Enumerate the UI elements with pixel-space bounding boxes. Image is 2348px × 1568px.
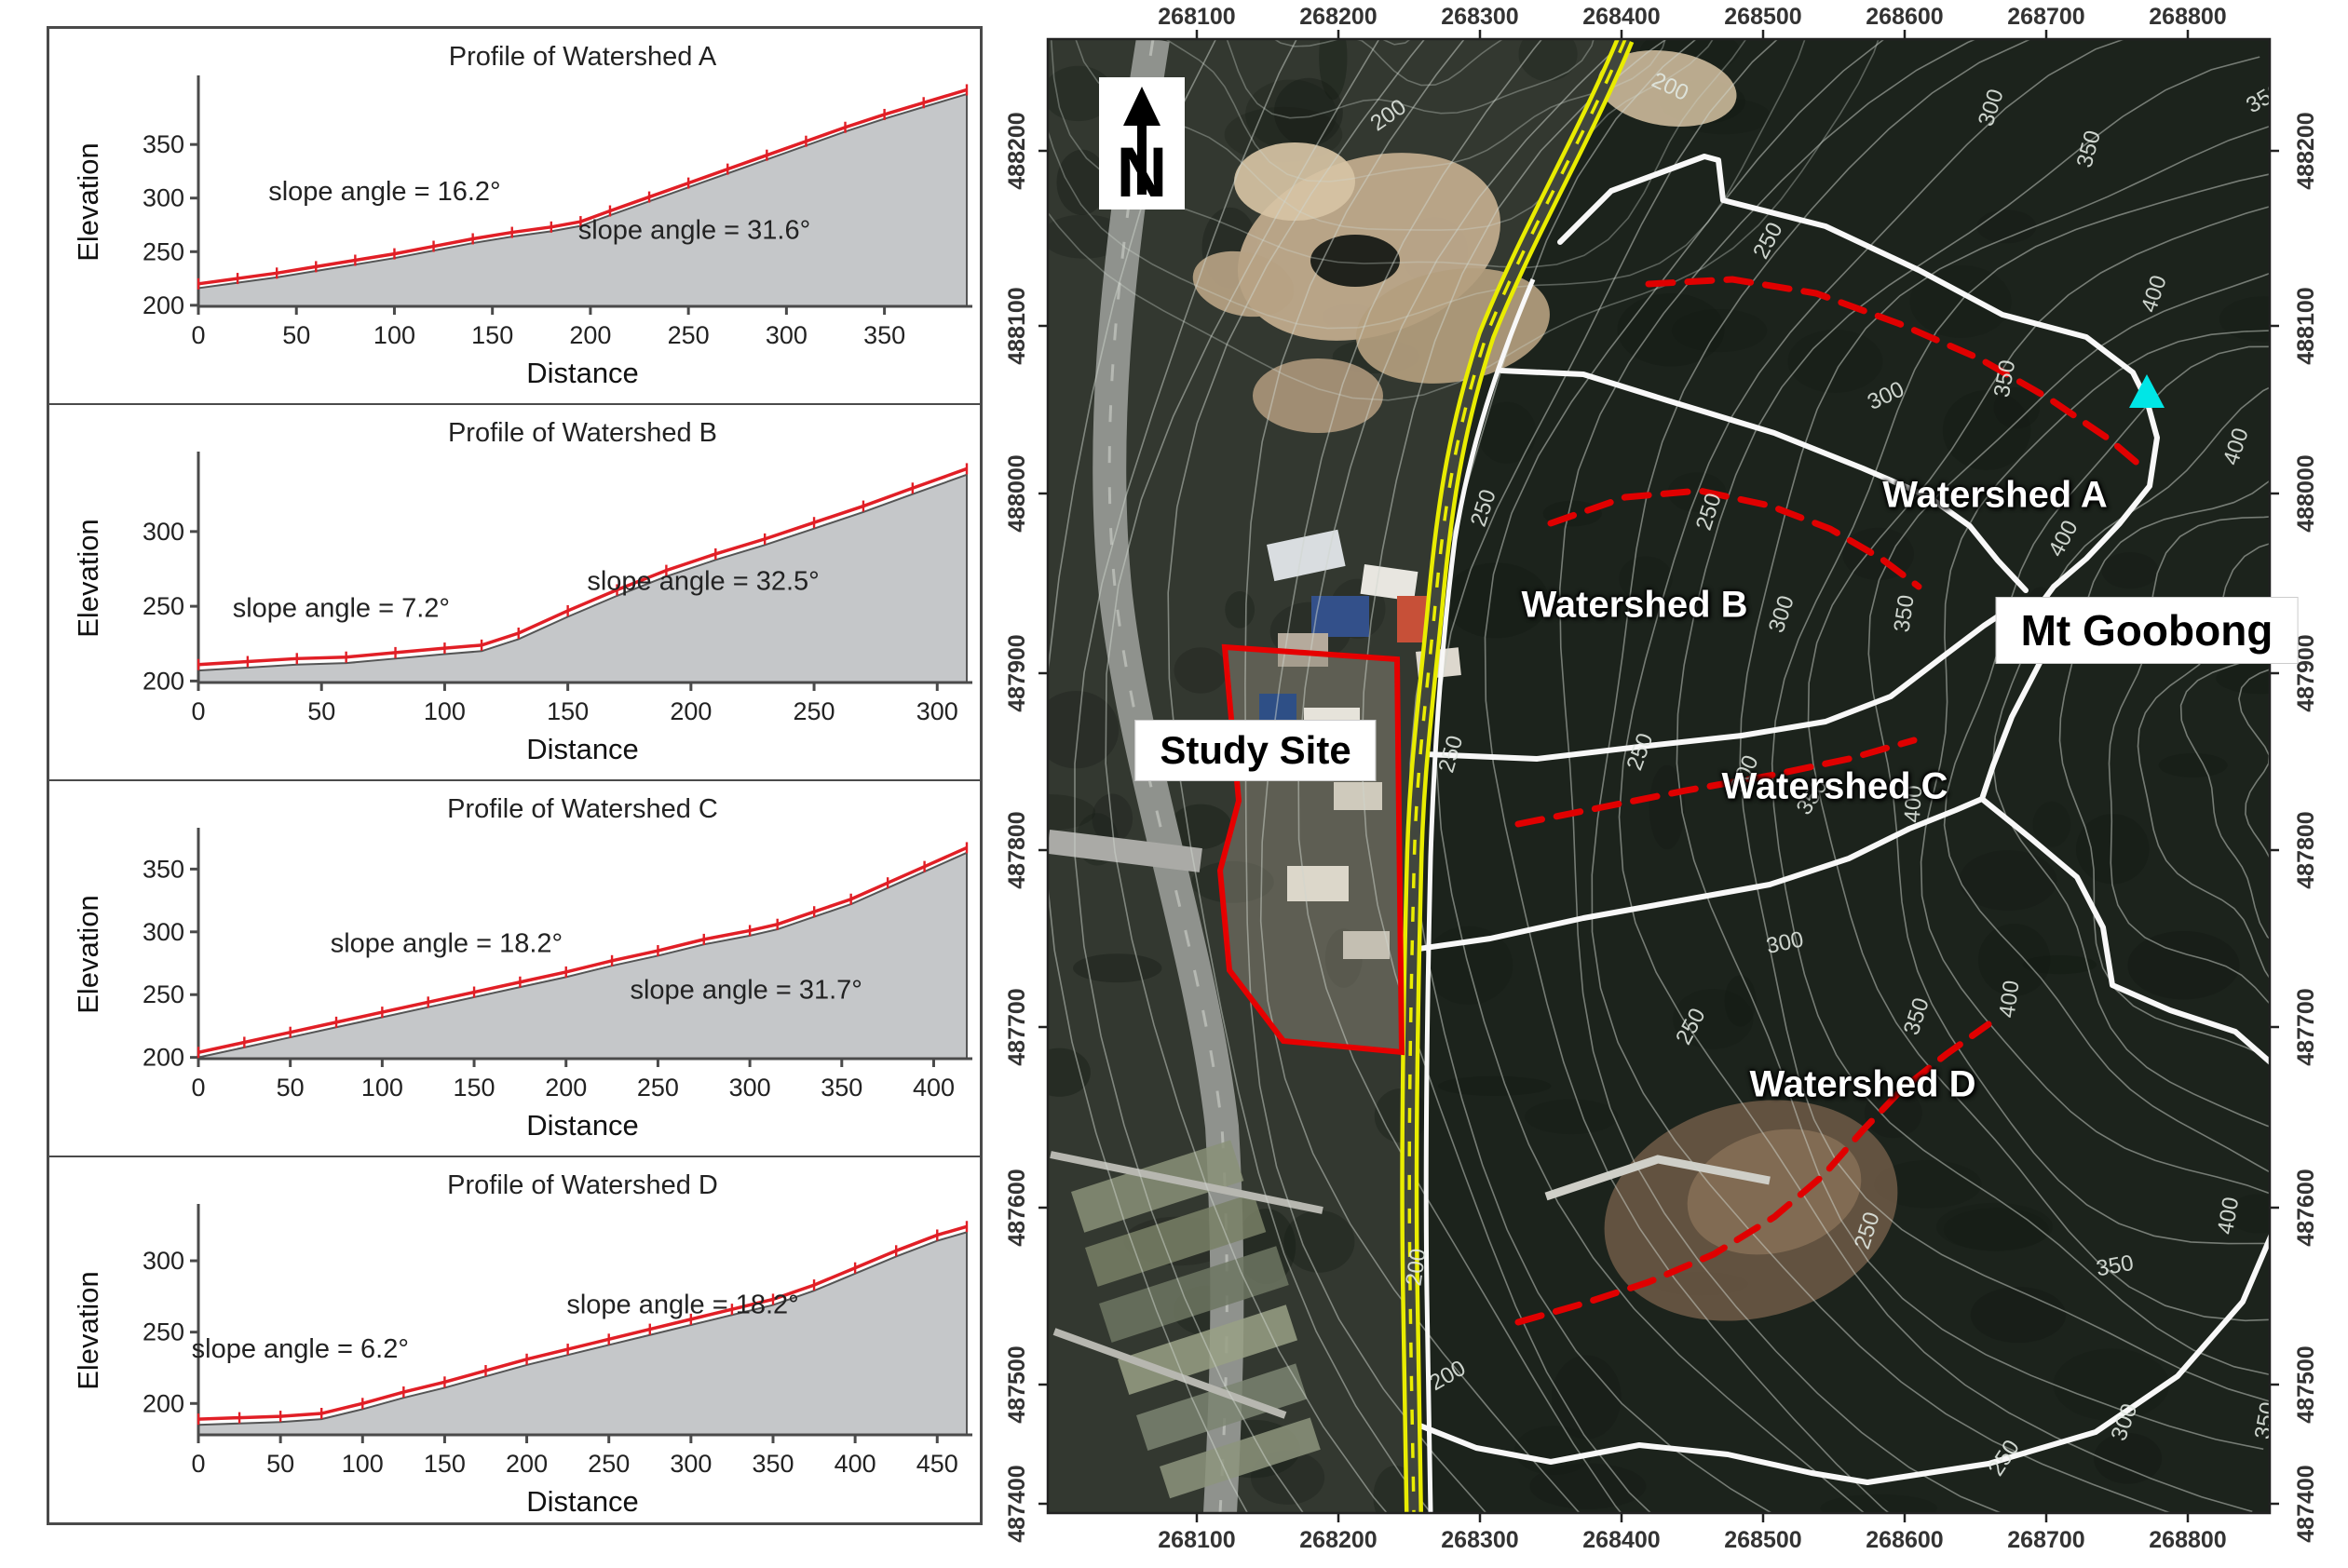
building bbox=[1311, 596, 1369, 637]
top-axis-label: 268600 bbox=[1866, 4, 1943, 30]
right-axis-label: 487800 bbox=[2293, 811, 2319, 888]
study-site-label: Study Site bbox=[1134, 720, 1376, 781]
forest-texture bbox=[1529, 1464, 1646, 1509]
left-axis-label: 487800 bbox=[1004, 811, 1030, 888]
forest-texture bbox=[2101, 552, 2158, 588]
watershed-b-label: Watershed B bbox=[1521, 585, 1747, 627]
forest-texture bbox=[2076, 814, 2150, 884]
right-axis-label: 487700 bbox=[2293, 988, 2319, 1065]
bottom-axis-label: 268200 bbox=[1299, 1527, 1377, 1553]
top-axis-label: 268400 bbox=[1582, 4, 1660, 30]
contour-label: 200 bbox=[1401, 1247, 1431, 1287]
watershed-d-label: Watershed D bbox=[1749, 1064, 1975, 1106]
watershed-a-label: Watershed A bbox=[1882, 475, 2108, 517]
left-axis-label: 487700 bbox=[1004, 988, 1030, 1065]
top-axis-label: 268800 bbox=[2149, 4, 2226, 30]
satellite-map: 2002503003503504002503003504004002503003… bbox=[0, 0, 2348, 1568]
top-axis-label: 268100 bbox=[1158, 4, 1235, 30]
forest-texture bbox=[1225, 591, 1255, 629]
quarry-pond bbox=[1310, 235, 1400, 287]
contour-label: 350 bbox=[2250, 1400, 2282, 1441]
study-building bbox=[1287, 866, 1349, 901]
left-axis-label: 488000 bbox=[1004, 454, 1030, 532]
right-axis-label: 487500 bbox=[2293, 1345, 2319, 1423]
north-arrow: N bbox=[1099, 77, 1185, 210]
bottom-axis-label: 268700 bbox=[2007, 1527, 2084, 1553]
contour-label: 400 bbox=[1994, 979, 2024, 1019]
left-axis-label: 488200 bbox=[1004, 112, 1030, 189]
left-axis-label: 488100 bbox=[1004, 287, 1030, 364]
bottom-axis-label: 268800 bbox=[2149, 1527, 2226, 1553]
forest-texture bbox=[1672, 309, 1767, 352]
forest-texture bbox=[1174, 647, 1228, 694]
top-axis-label: 268300 bbox=[1441, 4, 1518, 30]
study-building bbox=[1343, 931, 1390, 959]
forest-texture bbox=[1971, 1287, 2066, 1343]
bottom-axis-label: 268600 bbox=[1866, 1527, 1943, 1553]
contour-label: 350 bbox=[1889, 593, 1919, 633]
left-axis-label: 487500 bbox=[1004, 1345, 1030, 1423]
forest-texture bbox=[1525, 1100, 1618, 1134]
left-axis-label: 487600 bbox=[1004, 1169, 1030, 1246]
bottom-axis-label: 268100 bbox=[1158, 1527, 1235, 1553]
top-axis-label: 268700 bbox=[2007, 4, 2084, 30]
right-axis-label: 487400 bbox=[2293, 1465, 2319, 1542]
bottom-axis-label: 268400 bbox=[1582, 1527, 1660, 1553]
top-axis-label: 268500 bbox=[1724, 4, 1801, 30]
map-imagery: 2002503003503504002503003504004002503003… bbox=[912, 0, 2348, 1568]
right-axis-label: 488000 bbox=[2293, 454, 2319, 532]
left-axis-label: 487400 bbox=[1004, 1465, 1030, 1542]
forest-texture bbox=[1438, 1076, 1552, 1096]
right-axis-label: 488100 bbox=[2293, 287, 2319, 364]
forest-texture bbox=[1787, 330, 1882, 393]
forest-texture bbox=[2054, 1349, 2169, 1421]
study-building bbox=[1334, 782, 1382, 810]
forest-texture bbox=[1519, 27, 1578, 82]
forest-texture bbox=[1649, 765, 1685, 850]
forest-texture bbox=[1820, 1494, 1937, 1521]
forest-texture bbox=[1028, 1048, 1091, 1097]
forest-texture bbox=[1944, 1208, 2049, 1251]
forest-texture bbox=[2159, 753, 2228, 777]
mt-goobong-label: Mt Goobong bbox=[1996, 597, 2299, 664]
right-axis-label: 487600 bbox=[2293, 1169, 2319, 1246]
forest-texture bbox=[1245, 79, 1337, 149]
watershed-c-label: Watershed C bbox=[1721, 766, 1948, 808]
top-axis-label: 268200 bbox=[1299, 4, 1377, 30]
figure: Profile of Watershed A Elevation Distanc… bbox=[0, 0, 2348, 1568]
forest-texture bbox=[2033, 802, 2071, 847]
left-axis-label: 487900 bbox=[1004, 634, 1030, 711]
north-arrow-head bbox=[1123, 87, 1160, 126]
quarry-patch bbox=[1253, 358, 1383, 433]
right-axis-label: 488200 bbox=[2293, 112, 2319, 189]
bottom-axis-label: 268500 bbox=[1724, 1527, 1801, 1553]
bottom-axis-label: 268300 bbox=[1441, 1527, 1518, 1553]
